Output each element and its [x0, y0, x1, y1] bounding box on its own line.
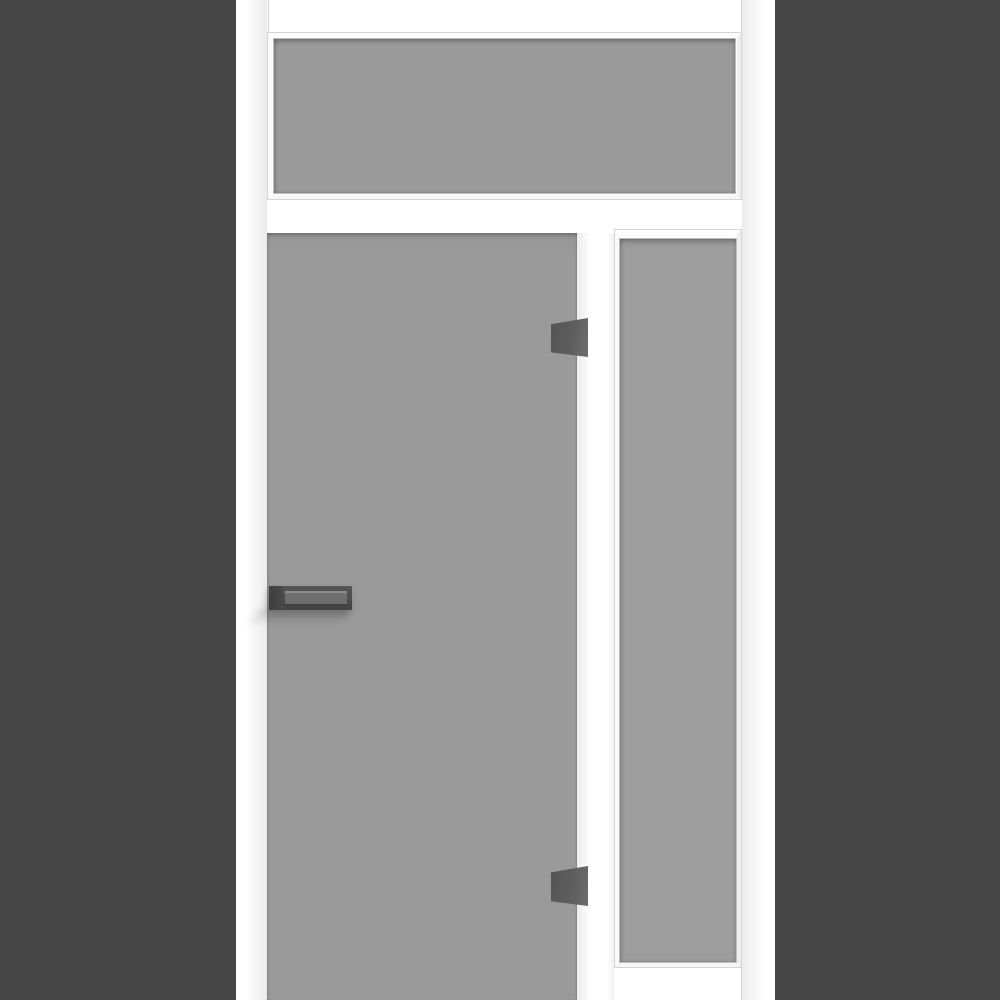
sidelight-glass	[619, 238, 737, 963]
transom-window	[267, 32, 742, 200]
frame-edge-line-top-left	[268, 0, 269, 33]
door-handle-base	[269, 586, 283, 610]
frame-edge-line-top-right	[741, 0, 742, 33]
sidelight-window	[614, 229, 742, 968]
door-handle	[269, 586, 352, 610]
door-product-render	[0, 0, 1000, 1000]
door-hinge-top	[551, 318, 588, 357]
wall-right	[775, 0, 1000, 1000]
door-hinge-bottom	[551, 866, 588, 906]
frame-jamb-left	[236, 0, 267, 1000]
frame-edge-line-bottom-right	[741, 967, 742, 1000]
transom-glass	[273, 38, 736, 194]
wall-left	[0, 0, 236, 1000]
frame-jamb-right	[742, 0, 775, 1000]
door-handle-face	[285, 591, 347, 605]
